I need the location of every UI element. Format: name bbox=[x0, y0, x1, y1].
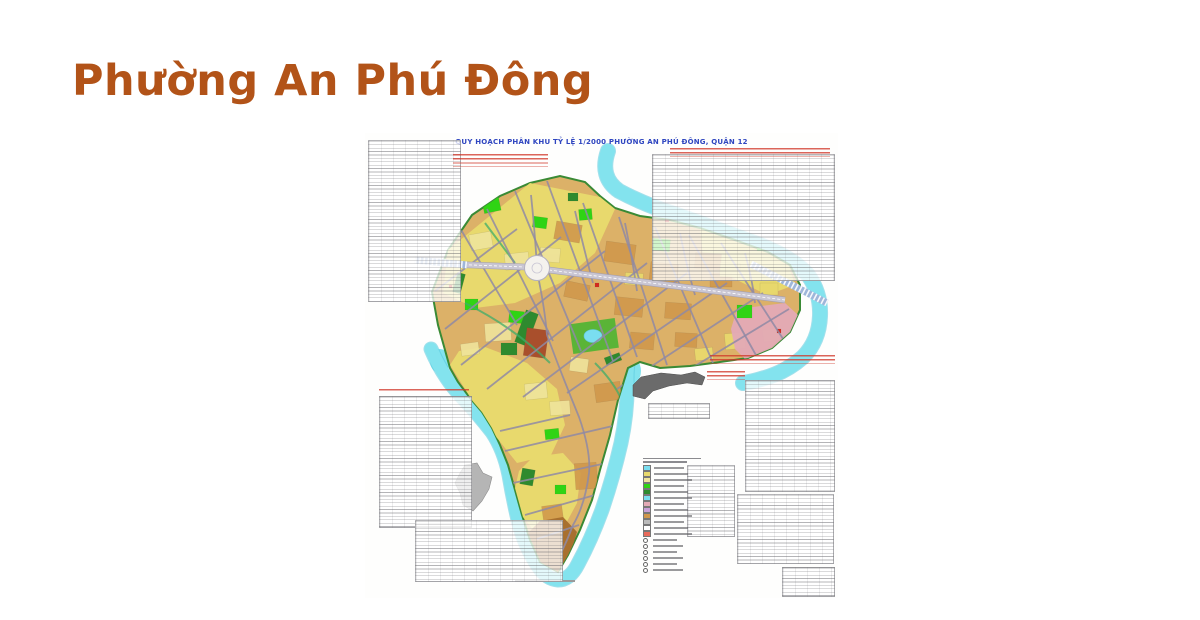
legend-color-swatch bbox=[643, 531, 651, 537]
red-note-above-blob bbox=[710, 355, 835, 364]
map-sheet: QUY HOẠCH PHÂN KHU TỶ LỆ 1/2000 PHƯỜNG A… bbox=[365, 133, 838, 598]
map-legend bbox=[643, 456, 725, 573]
legend-symbol-icon bbox=[643, 568, 648, 573]
red-note-right-of-blob bbox=[707, 371, 745, 380]
legend-symbol-icon bbox=[643, 556, 648, 561]
stats-table-right-mid bbox=[737, 494, 834, 564]
stats-table-top-right bbox=[652, 154, 835, 281]
page-title: Phường An Phú Đông bbox=[72, 58, 593, 105]
legend-symbol-icon bbox=[643, 544, 648, 549]
stats-table-top-left bbox=[368, 140, 461, 302]
stats-table-right-small bbox=[782, 567, 835, 597]
red-note-left bbox=[453, 154, 548, 167]
red-note-right-top bbox=[670, 148, 830, 157]
stats-table-right-tall bbox=[745, 380, 835, 492]
legend-symbol-icon bbox=[643, 562, 648, 567]
stats-table-center-small bbox=[648, 403, 710, 419]
red-note-left-table-header bbox=[379, 389, 469, 393]
legend-symbol-icon bbox=[643, 538, 648, 543]
aerial-3d-image bbox=[633, 372, 705, 399]
stats-table-bottom-wide bbox=[415, 520, 563, 582]
stats-table-left bbox=[379, 396, 472, 528]
legend-symbol-icon bbox=[643, 550, 648, 555]
roundabout bbox=[525, 256, 550, 281]
